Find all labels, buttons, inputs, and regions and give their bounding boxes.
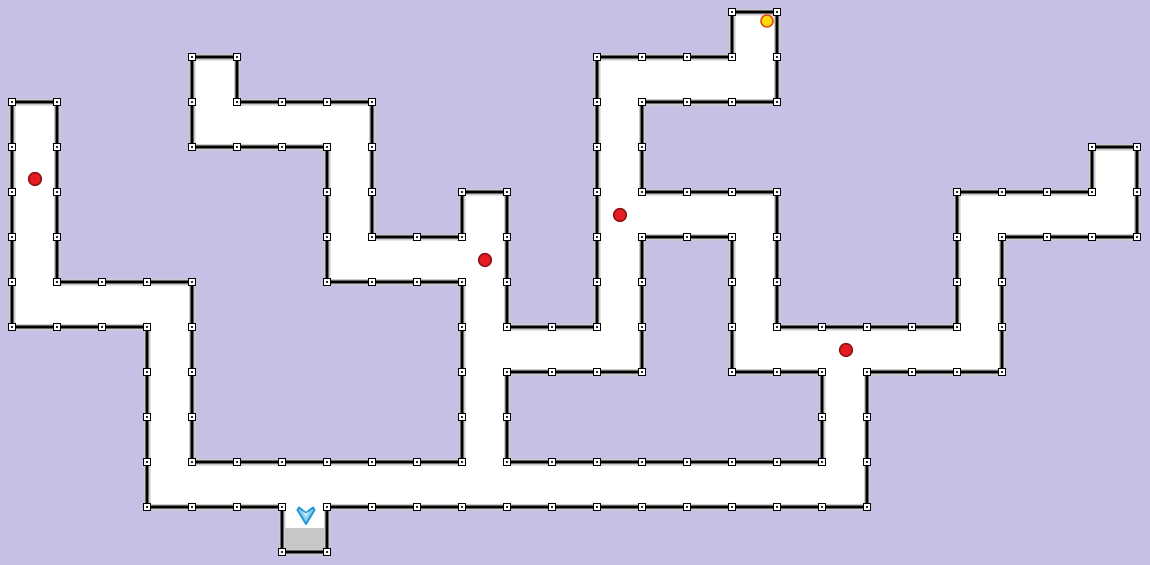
vertex-handle[interactable] (1089, 189, 1096, 196)
red-dot[interactable] (29, 173, 42, 186)
vertex-handle[interactable] (684, 189, 691, 196)
vertex-handle[interactable] (369, 144, 376, 151)
vertex-handle[interactable] (504, 189, 511, 196)
vertex-handle[interactable] (144, 279, 151, 286)
vertex-handle[interactable] (1089, 234, 1096, 241)
vertex-handle[interactable] (549, 504, 556, 511)
vertex-handle[interactable] (639, 324, 646, 331)
vertex-handle[interactable] (54, 234, 61, 241)
vertex-handle[interactable] (414, 279, 421, 286)
vertex-handle[interactable] (144, 414, 151, 421)
vertex-handle[interactable] (144, 369, 151, 376)
vertex-handle[interactable] (459, 504, 466, 511)
vertex-handle[interactable] (279, 549, 286, 556)
vertex-handle[interactable] (774, 234, 781, 241)
vertex-handle[interactable] (504, 369, 511, 376)
vertex-handle[interactable] (594, 369, 601, 376)
vertex-handle[interactable] (549, 459, 556, 466)
vertex-handle[interactable] (414, 504, 421, 511)
red-dot[interactable] (614, 209, 627, 222)
vertex-handle[interactable] (54, 324, 61, 331)
vertex-handle[interactable] (189, 369, 196, 376)
vertex-handle[interactable] (459, 459, 466, 466)
vertex-handle[interactable] (324, 144, 331, 151)
vertex-handle[interactable] (279, 504, 286, 511)
vertex-handle[interactable] (1134, 189, 1141, 196)
vertex-handle[interactable] (9, 279, 16, 286)
vertex-handle[interactable] (954, 189, 961, 196)
vertex-handle[interactable] (684, 99, 691, 106)
vertex-handle[interactable] (864, 504, 871, 511)
vertex-handle[interactable] (504, 279, 511, 286)
vertex-handle[interactable] (54, 99, 61, 106)
red-dot[interactable] (479, 254, 492, 267)
vertex-handle[interactable] (234, 144, 241, 151)
vertex-handle[interactable] (459, 234, 466, 241)
vertex-handle[interactable] (774, 99, 781, 106)
vertex-handle[interactable] (324, 189, 331, 196)
vertex-handle[interactable] (279, 99, 286, 106)
vertex-handle[interactable] (864, 369, 871, 376)
vertex-handle[interactable] (909, 324, 916, 331)
vertex-handle[interactable] (774, 54, 781, 61)
vertex-handle[interactable] (594, 144, 601, 151)
vertex-handle[interactable] (414, 234, 421, 241)
vertex-handle[interactable] (9, 324, 16, 331)
vertex-handle[interactable] (774, 369, 781, 376)
vertex-handle[interactable] (684, 54, 691, 61)
red-dot[interactable] (840, 344, 853, 357)
vertex-handle[interactable] (909, 369, 916, 376)
vertex-handle[interactable] (594, 54, 601, 61)
vertex-handle[interactable] (774, 459, 781, 466)
vertex-handle[interactable] (189, 414, 196, 421)
vertex-handle[interactable] (774, 324, 781, 331)
vertex-handle[interactable] (954, 324, 961, 331)
vertex-handle[interactable] (729, 279, 736, 286)
vertex-handle[interactable] (639, 504, 646, 511)
vertex-handle[interactable] (729, 54, 736, 61)
editor-stage (0, 0, 1150, 565)
vertex-handle[interactable] (999, 324, 1006, 331)
vertex-handle[interactable] (189, 504, 196, 511)
vertex-handle[interactable] (99, 279, 106, 286)
vertex-handle[interactable] (324, 99, 331, 106)
vertex-handle[interactable] (684, 459, 691, 466)
vertex-handle[interactable] (729, 504, 736, 511)
vertex-handle[interactable] (729, 459, 736, 466)
vertex-handle[interactable] (1134, 234, 1141, 241)
vertex-handle[interactable] (639, 144, 646, 151)
vertex-handle[interactable] (639, 369, 646, 376)
vertex-handle[interactable] (594, 99, 601, 106)
vertex-handle[interactable] (324, 234, 331, 241)
vertex-handle[interactable] (369, 459, 376, 466)
vertex-handle[interactable] (234, 54, 241, 61)
vertex-handle[interactable] (819, 414, 826, 421)
vertex-handle[interactable] (9, 189, 16, 196)
vertex-handle[interactable] (9, 99, 16, 106)
vertex-handle[interactable] (729, 9, 736, 16)
vertex-handle[interactable] (594, 234, 601, 241)
vertex-handle[interactable] (504, 234, 511, 241)
vertex-handle[interactable] (729, 324, 736, 331)
vertex-handle[interactable] (639, 189, 646, 196)
vertex-handle[interactable] (594, 279, 601, 286)
vertex-handle[interactable] (999, 234, 1006, 241)
vertex-handle[interactable] (369, 234, 376, 241)
vertex-handle[interactable] (324, 504, 331, 511)
vertex-handle[interactable] (864, 459, 871, 466)
vertex-handle[interactable] (639, 99, 646, 106)
vertex-handle[interactable] (729, 234, 736, 241)
vertex-handle[interactable] (459, 279, 466, 286)
vertex-handle[interactable] (954, 279, 961, 286)
vertex-handle[interactable] (999, 189, 1006, 196)
vertex-handle[interactable] (1044, 234, 1051, 241)
vertex-handle[interactable] (549, 369, 556, 376)
vertex-handle[interactable] (189, 54, 196, 61)
vertex-handle[interactable] (189, 459, 196, 466)
vertex-handle[interactable] (369, 279, 376, 286)
vertex-handle[interactable] (189, 99, 196, 106)
vertex-handle[interactable] (54, 279, 61, 286)
vertex-handle[interactable] (144, 504, 151, 511)
vertex-handle[interactable] (729, 189, 736, 196)
vertex-handle[interactable] (144, 324, 151, 331)
vertex-handle[interactable] (954, 234, 961, 241)
vertex-handle[interactable] (504, 459, 511, 466)
vertex-handle[interactable] (819, 504, 826, 511)
vertex-handle[interactable] (459, 324, 466, 331)
vertex-handle[interactable] (774, 9, 781, 16)
vertex-handle[interactable] (234, 99, 241, 106)
vertex-handle[interactable] (639, 54, 646, 61)
vertex-handle[interactable] (729, 99, 736, 106)
vertex-handle[interactable] (684, 234, 691, 241)
vertex-handle[interactable] (999, 369, 1006, 376)
vertex-handle[interactable] (279, 144, 286, 151)
vertex-handle[interactable] (324, 549, 331, 556)
vertex-handle[interactable] (504, 414, 511, 421)
vertex-handle[interactable] (594, 189, 601, 196)
vertex-handle[interactable] (1134, 144, 1141, 151)
vertex-handle[interactable] (819, 324, 826, 331)
vertex-handle[interactable] (369, 99, 376, 106)
vertex-handle[interactable] (594, 504, 601, 511)
vertex-handle[interactable] (459, 369, 466, 376)
vertex-handle[interactable] (459, 189, 466, 196)
vertex-handle[interactable] (1044, 189, 1051, 196)
vertex-handle[interactable] (639, 279, 646, 286)
vertex-handle[interactable] (819, 459, 826, 466)
vertex-handle[interactable] (324, 279, 331, 286)
vertex-handle[interactable] (594, 324, 601, 331)
vertex-handle[interactable] (99, 324, 106, 331)
vertex-handle[interactable] (324, 459, 331, 466)
vertex-handle[interactable] (864, 414, 871, 421)
vertex-handle[interactable] (774, 189, 781, 196)
landing-pad (284, 528, 326, 551)
vertex-handle[interactable] (954, 369, 961, 376)
vertex-handle[interactable] (594, 459, 601, 466)
vertex-handle[interactable] (234, 459, 241, 466)
vertex-handle[interactable] (54, 144, 61, 151)
vertex-handle[interactable] (774, 279, 781, 286)
vertex-handle[interactable] (684, 504, 691, 511)
vertex-handle[interactable] (414, 459, 421, 466)
goal-dot[interactable] (761, 15, 773, 27)
vertex-handle[interactable] (864, 324, 871, 331)
vertex-handle[interactable] (234, 504, 241, 511)
vertex-handle[interactable] (819, 369, 826, 376)
vertex-handle[interactable] (369, 189, 376, 196)
vertex-handle[interactable] (1089, 144, 1096, 151)
vertex-handle[interactable] (549, 324, 556, 331)
vertex-handle[interactable] (9, 234, 16, 241)
vertex-handle[interactable] (369, 504, 376, 511)
vertex-handle[interactable] (54, 189, 61, 196)
vertex-handle[interactable] (999, 279, 1006, 286)
vertex-handle[interactable] (459, 414, 466, 421)
vertex-handle[interactable] (729, 369, 736, 376)
vertex-handle[interactable] (504, 324, 511, 331)
vertex-handle[interactable] (774, 504, 781, 511)
vertex-handle[interactable] (639, 459, 646, 466)
vertex-handle[interactable] (279, 459, 286, 466)
vertex-handle[interactable] (504, 504, 511, 511)
vertex-handle[interactable] (9, 144, 16, 151)
vertex-handle[interactable] (189, 279, 196, 286)
vertex-handle[interactable] (144, 459, 151, 466)
vertex-handle[interactable] (189, 324, 196, 331)
level-canvas[interactable] (0, 0, 1150, 565)
vertex-handle[interactable] (639, 234, 646, 241)
vertex-handle[interactable] (189, 144, 196, 151)
